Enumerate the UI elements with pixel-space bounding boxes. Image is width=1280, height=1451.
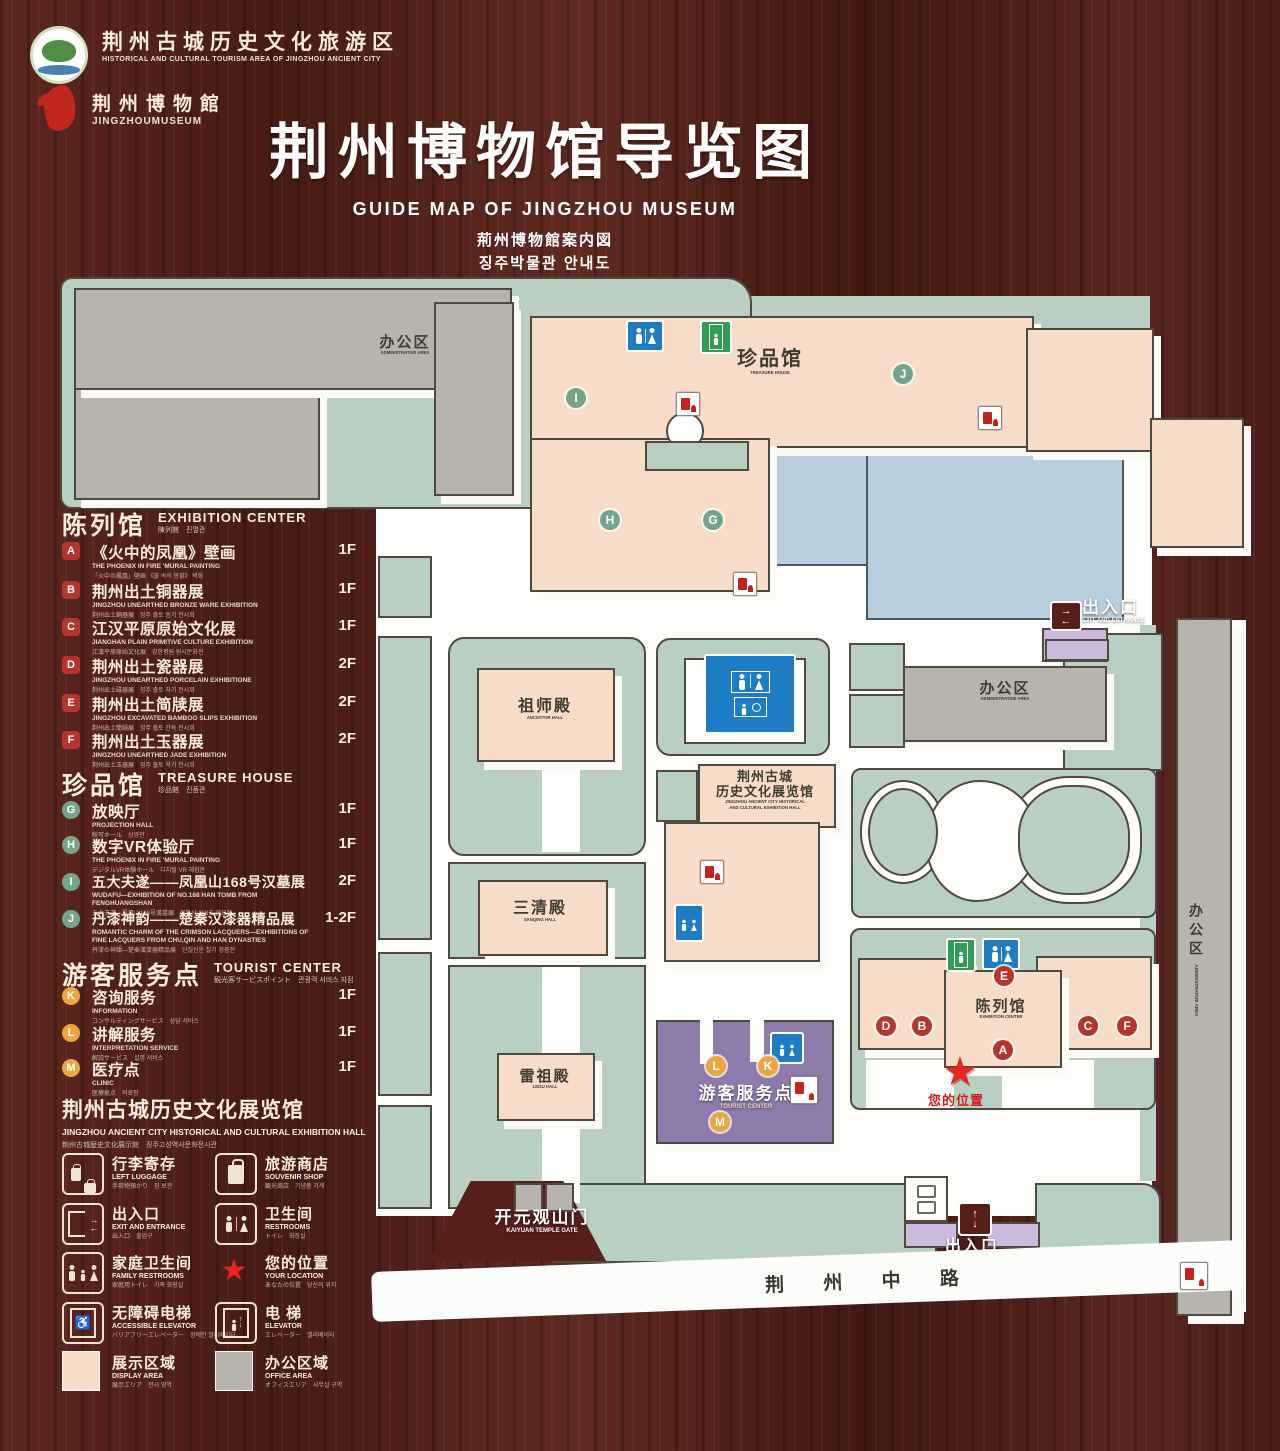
left-luggage-icon (1180, 1262, 1208, 1290)
legend-symbol-office-area: 办公区域OFFICE AREAオフィスエリア 사무실 구역 (215, 1352, 367, 1389)
nw-admin-building-arm (434, 302, 514, 496)
left-luggage-icon (978, 406, 1002, 430)
ancestor-hall-label: 祖师殿 ANCESTOR HALL (490, 698, 600, 722)
road-label: 荆 州 中 路 (765, 1263, 977, 1298)
legend-item-f: F 荆州出土玉器展 JINGZHOU UNEARTHED JADE EXHIBI… (62, 730, 356, 769)
left-luggage-icon (676, 392, 700, 416)
w-strip-3 (378, 952, 432, 1096)
restroom-icon (626, 320, 664, 352)
exit-icon: ↑↓ (958, 1202, 992, 1236)
restroom-icon (674, 904, 704, 942)
nw-admin-label: 办公区 ADMINISTRATIVE AREA (330, 334, 480, 357)
family-restrooms-icon (62, 1252, 104, 1294)
tourism-area-name: 荆州古城历史文化旅游区 (102, 26, 399, 56)
map-marker-j: J (893, 364, 913, 384)
map-marker-c: C (1078, 1016, 1098, 1036)
legend-symbol-your-location: ★ 您的位置YOUR LOCATIONあなたの位置 당신의 위치 (215, 1252, 367, 1289)
leizu-hall-label: 雷祖殿 LEIZU HALL (495, 1068, 595, 1091)
left-luggage-icon (733, 572, 757, 596)
left-luggage-icon (700, 860, 724, 884)
restrooms-icon (215, 1203, 257, 1245)
museum-name: 荆州博物館 (92, 89, 227, 116)
ancestor-path (542, 756, 580, 852)
legend-item-j: J 丹漆神韵——楚秦汉漆器精品展 ROMANTIC CHARM OF THE C… (62, 909, 356, 954)
poster-title-block: 荆州博物馆导览图 GUIDE MAP OF JINGZHOU MUSEUM 荊州… (240, 104, 850, 273)
page-title-ko: 징주박물관 안내도 (240, 252, 850, 273)
map-marker-g: G (703, 510, 723, 530)
museum-logo: 荆州博物館 JINGZHOUMUSEUM (44, 86, 227, 130)
map-marker-f: F (1117, 1016, 1137, 1036)
legend-symbol-restrooms: 卫生间RESTROOMSトイレ 화장실 (215, 1203, 367, 1240)
hist-parcel-w (656, 770, 698, 822)
your-location-icon: ★ (942, 1052, 978, 1092)
exit-icon: →← (1050, 601, 1082, 631)
souvenir-shop-icon (215, 1153, 257, 1195)
pond-south (866, 430, 1124, 620)
e-pink-block (1150, 418, 1244, 548)
page-title-en: GUIDE MAP OF JINGZHOU MUSEUM (240, 199, 850, 220)
map-marker-e: E (994, 966, 1014, 986)
display-area-swatch (62, 1352, 100, 1390)
w-strip-2 (378, 636, 432, 940)
museum-name-en: JINGZHOUMUSEUM (92, 116, 227, 127)
treasure-house-building (530, 316, 1034, 448)
e-admin-strip-label: 办公区 ADMINISTRATIVE AREA (1186, 860, 1206, 1060)
tourism-area-emblem-icon (30, 26, 88, 84)
your-location-icon: ★ (215, 1252, 253, 1290)
exit-entrance-icon: →← (62, 1203, 104, 1245)
legend-item-l: L 讲解服务 INTERPRETATION SERVICE 解説サービス 설명 … (62, 1023, 356, 1062)
kaiyuan-gate-label: 开元观山门 KAIYUAN TEMPLE GATE (452, 1208, 632, 1234)
e-parcel-small-1 (849, 643, 905, 691)
legend-symbol-left-luggage: 行李寄存LEFT LUGGAGE手荷物預かり 짐 보관 (62, 1153, 214, 1190)
ne-exit-label: 出入口 EXIT AND ENTRANCE (1082, 598, 1145, 624)
map-marker-d: D (876, 1016, 896, 1036)
legend-symbol-display-area: 展示区域DISPLAY AREA展示エリア 전시 영역 (62, 1352, 214, 1389)
e-parcel-small-2 (849, 694, 905, 748)
map-marker-k: K (758, 1056, 778, 1076)
legend-item-d: D 荆州出土瓷器展 JINGZHOU UNEARTHED PORCELAIN E… (62, 655, 356, 694)
e-admin-label: 办公区 ADMINISTRATIVE AREA (930, 680, 1080, 703)
e-admin-building (903, 666, 1107, 742)
legend-item-e: E 荆州出土简牍展 JINGZHOU EXCAVATED BAMBOO SLIP… (62, 693, 356, 732)
map-marker-i: I (566, 388, 586, 408)
e-gate (1045, 639, 1109, 661)
restroom-icon (982, 938, 1020, 970)
treasure-house-green-bit (645, 441, 749, 471)
elevator-icon: ↑↓ (215, 1302, 257, 1344)
tourist-notch-2 (750, 1018, 764, 1062)
legend-item-k: K 咨询服务 INFORMATION コンサルティングサービス 상담 서비스 1… (62, 986, 356, 1025)
accessible-elevator-icon: ♿ (62, 1302, 104, 1344)
legend-symbol-family-restrooms: 家庭卫生间FAMILY RESTROOMS家庭用トイレ 가족 화장실 (62, 1252, 214, 1289)
map-marker-b: B (912, 1016, 932, 1036)
legend-item-c: C 江汉平原原始文化展 JIANGHAN PLAIN PRIMITIVE CUL… (62, 617, 356, 656)
left-luggage-icon (62, 1153, 104, 1195)
legend-symbol-exit-entrance: →← 出入口EXIT AND ENTRANCE出入口 출입구 (62, 1203, 214, 1240)
left-luggage-icon (790, 1076, 818, 1104)
legend-symbol-accessible-elevator: ♿ 无障碍电梯ACCESSIBLE ELEVATORバリアフリーエレベーター 장… (62, 1302, 214, 1339)
your-location-label: 您的位置 (928, 1094, 984, 1109)
map-marker-a: A (993, 1040, 1013, 1060)
elevator-icon (946, 938, 976, 972)
legend-hall-title: 荆州古城历史文化展览馆 JINGZHOU ANCIENT CITY HISTOR… (62, 1094, 366, 1150)
exhibition-center-label: 陈列馆 EXHIBITION CENTER (946, 998, 1056, 1021)
garden-island-east (1018, 785, 1130, 895)
tourism-area-name-en: HISTORICAL AND CULTURAL TOURISM AREA OF … (102, 56, 399, 63)
map-marker-l: L (706, 1056, 726, 1076)
w-strip-1 (378, 556, 432, 618)
legend-item-b: B 荆州出土铜器展 JINGZHOU UNEARTHED BRONZE WARE… (62, 580, 356, 619)
legend-symbol-elevator: ↑↓ 电 梯ELEVATORエレベーター 엘리베이터 (215, 1302, 367, 1339)
sanqing-hall-label: 三清殿 SANQING HALL (485, 900, 595, 924)
map-marker-m: M (710, 1112, 730, 1132)
hist-hall-label: 荆州古城 历史文化展览馆 JINGZHOU ANCIENT CITY HISTO… (700, 770, 830, 811)
page-title: 荆州博物馆导览图 (240, 104, 850, 191)
restroom-icon (704, 654, 796, 734)
legend-item-m: M 医疗点 CLINIC 医療拠点 의료점 1F (62, 1058, 356, 1097)
legend-item-h: H 数字VR体验厅 THE PHOENIX IN FIRE 'MURAL PAI… (62, 835, 356, 874)
w-strip-4 (378, 1105, 432, 1209)
office-area-swatch (215, 1352, 253, 1390)
legend-item-g: G 放映厅 PROJECTION HALL 映写ホール 상영관 1F (62, 800, 356, 839)
elevator-icon (700, 320, 732, 354)
leizu-path-n (542, 967, 580, 1053)
treasure-house-east-wing (1026, 328, 1154, 452)
legend-section-exhibition: 陈列馆 EXHIBITION CENTER陳列館 진열관 (62, 506, 306, 542)
legend-symbol-souvenir-shop: 旅游商店SOUVENIR SHOP観光商店 기념품 가게 (215, 1153, 367, 1190)
restroom-building-icon (904, 1176, 948, 1222)
page-title-ja: 荊州博物館案内図 (240, 229, 850, 250)
tourism-area-logo: 荆州古城历史文化旅游区 HISTORICAL AND CULTURAL TOUR… (30, 26, 399, 84)
phoenix-emblem-icon (39, 83, 81, 133)
guide-map-poster: 荆州古城历史文化旅游区 HISTORICAL AND CULTURAL TOUR… (0, 0, 1280, 1451)
legend-section-treasure: 珍品馆 TREASURE HOUSE珍品館 진품관 (62, 766, 293, 802)
map-marker-h: H (600, 510, 620, 530)
legend-item-a: A 《火中的凤凰》壁画 THE PHOENIX IN FIRE 'MURAL P… (62, 541, 356, 580)
garden-island-west (868, 788, 938, 876)
